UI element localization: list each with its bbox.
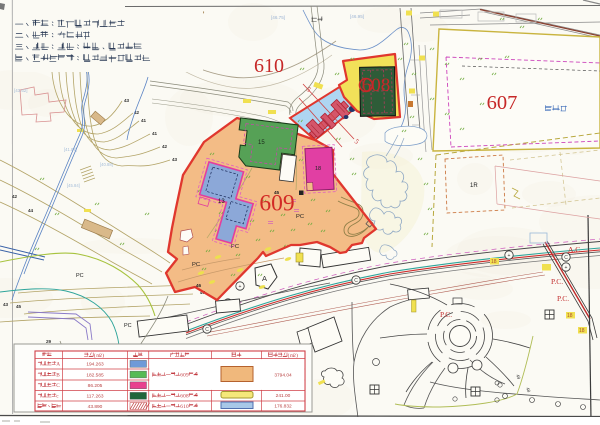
svg-text:41: 41 xyxy=(141,118,147,123)
svg-text:PC: PC xyxy=(231,244,239,250)
svg-text:8: 8 xyxy=(186,394,189,400)
svg-text:194.263: 194.263 xyxy=(86,362,104,368)
svg-text:[45.84]: [45.84] xyxy=(67,183,80,188)
svg-text:A: A xyxy=(56,362,60,368)
svg-text:C: C xyxy=(205,327,209,333)
svg-text:C: C xyxy=(354,278,358,284)
svg-text:0: 0 xyxy=(186,404,189,410)
svg-text:15: 15 xyxy=(258,140,265,146)
svg-text:607: 607 xyxy=(487,92,518,114)
svg-text:C: C xyxy=(564,255,568,261)
svg-text:43.890: 43.890 xyxy=(88,404,103,410)
svg-text:43: 43 xyxy=(172,157,178,162)
svg-text:9: 9 xyxy=(186,373,189,379)
svg-text:182.585: 182.585 xyxy=(86,372,104,378)
svg-text:117.263: 117.263 xyxy=(87,394,104,400)
svg-text:+: + xyxy=(565,265,568,271)
svg-text:PC: PC xyxy=(296,214,304,220)
svg-text:PC: PC xyxy=(192,262,200,268)
svg-text:86.205: 86.205 xyxy=(88,383,103,389)
svg-text:): ) xyxy=(102,352,104,359)
svg-text:P.C.: P.C. xyxy=(557,294,569,303)
svg-text:P.C.: P.C. xyxy=(551,277,563,286)
svg-text:PC: PC xyxy=(76,273,84,279)
svg-text:609: 609 xyxy=(259,191,294,217)
svg-text:610: 610 xyxy=(254,55,284,77)
svg-text:18: 18 xyxy=(315,166,321,172)
svg-text:PC: PC xyxy=(124,323,132,329)
svg-text:A.C.: A.C. xyxy=(568,245,582,254)
svg-text:A: A xyxy=(262,274,267,283)
svg-text:18: 18 xyxy=(567,313,573,319)
svg-text:43: 43 xyxy=(124,98,130,103)
svg-text:[43.62]: [43.62] xyxy=(14,88,27,93)
svg-text:44: 44 xyxy=(28,208,34,213)
svg-text:B: B xyxy=(56,372,60,378)
svg-text:+: + xyxy=(508,253,511,259)
svg-text:18: 18 xyxy=(579,328,585,334)
svg-text:241.00: 241.00 xyxy=(276,393,291,399)
svg-text:+: + xyxy=(239,284,242,290)
svg-text:41: 41 xyxy=(152,131,158,136)
svg-text:3794.04: 3794.04 xyxy=(274,373,292,379)
svg-text:43: 43 xyxy=(3,302,9,307)
svg-text:[46.95]: [46.95] xyxy=(350,14,364,19)
svg-text:): ) xyxy=(296,352,298,359)
svg-text:1R: 1R xyxy=(470,183,478,189)
svg-text:176.832: 176.832 xyxy=(274,404,292,410)
svg-text:45: 45 xyxy=(16,304,22,309)
svg-text:18: 18 xyxy=(491,259,497,265)
svg-text:P.C.: P.C. xyxy=(440,310,452,319)
svg-text:13: 13 xyxy=(218,199,225,205)
svg-text:[40.88]: [40.88] xyxy=(100,162,113,167)
svg-text:42: 42 xyxy=(162,144,168,149)
svg-text:C: C xyxy=(56,383,60,389)
svg-text:29: 29 xyxy=(46,339,52,344)
svg-text:[46.75]: [46.75] xyxy=(271,15,285,20)
svg-text:[41.87]: [41.87] xyxy=(64,147,77,152)
svg-text:42: 42 xyxy=(12,194,18,199)
